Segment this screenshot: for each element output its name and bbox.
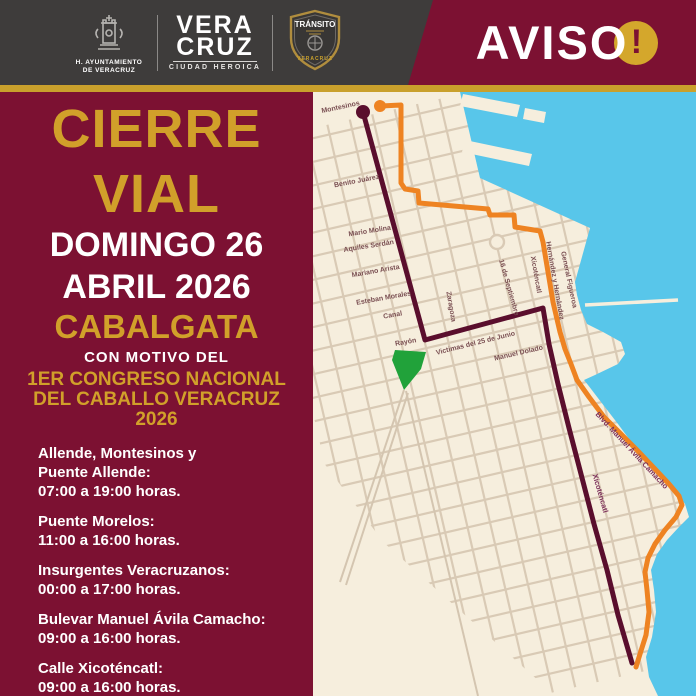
congress-line1: 1ER CONGRESO NACIONAL	[0, 370, 313, 390]
notice-label: AVISO	[476, 15, 629, 70]
ayuntamiento-name-line2: DE VERACRUZ	[70, 67, 148, 75]
header-divider	[157, 15, 158, 71]
schedule-hours: 00:00 a 17:00 horas.	[38, 581, 181, 598]
transito-shield-icon: TRÁNSITO VERACRUZ	[286, 8, 344, 72]
closure-date-line1: DOMINGO 26	[0, 226, 313, 264]
veracruz-logo-rule	[173, 61, 257, 62]
veracruz-logo-tagline: CIUDAD HEROICA	[167, 64, 263, 71]
schedule-street: Allende, Montesinos y Puente Allende:	[38, 445, 196, 481]
schedule-hours: 07:00 a 19:00 horas.	[38, 483, 181, 500]
header: H. AYUNTAMIENTO DE VERACRUZ VERA CRUZ CI…	[0, 0, 696, 85]
transito-badge: TRÁNSITO VERACRUZ	[286, 8, 344, 77]
schedule-item: Insurgentes Veracruzanos: 00:00 a 17:00 …	[38, 561, 303, 599]
congress-line3: 2026	[0, 410, 313, 430]
transito-badge-subtitle: VERACRUZ	[297, 56, 333, 62]
schedule-item: Allende, Montesinos y Puente Allende: 07…	[38, 444, 303, 501]
closure-title-line1: CIERRE	[0, 102, 313, 157]
schedule-street: Calle Xicoténcatl:	[38, 660, 163, 677]
header-logos: H. AYUNTAMIENTO DE VERACRUZ VERA CRUZ CI…	[0, 0, 420, 85]
info-panel: CIERRE VIAL DOMINGO 26 ABRIL 2026 CABALG…	[0, 92, 313, 696]
schedule-item: Puente Morelos: 11:00 a 16:00 horas.	[38, 512, 303, 550]
veracruz-logo: VERA CRUZ CIUDAD HEROICA	[167, 14, 263, 71]
road-closure-poster: H. AYUNTAMIENTO DE VERACRUZ VERA CRUZ CI…	[0, 0, 696, 696]
schedule-hours: 09:00 a 16:00 horas.	[38, 630, 181, 647]
ayuntamiento-logo: H. AYUNTAMIENTO DE VERACRUZ	[70, 11, 148, 75]
transito-badge-title: TRÁNSITO	[295, 20, 336, 29]
ayuntamiento-name-line1: H. AYUNTAMIENTO	[70, 59, 148, 67]
city-map: MontesinosBenito JuárezMario MolinaAquil…	[313, 92, 696, 696]
city-crest-icon	[86, 11, 132, 59]
route-orange-start-dot	[374, 100, 386, 112]
header-divider	[272, 15, 273, 71]
congress-line2: DEL CABALLO VERACRUZ	[0, 390, 313, 410]
closure-schedule: Allende, Montesinos y Puente Allende: 07…	[38, 444, 303, 696]
event-name: CABALGATA	[0, 308, 313, 346]
veracruz-logo-line2: CRUZ	[167, 36, 263, 58]
schedule-street: Puente Morelos:	[38, 513, 155, 530]
schedule-street: Insurgentes Veracruzanos:	[38, 562, 230, 579]
closure-title-line2: VIAL	[0, 167, 313, 222]
closure-date-line2: ABRIL 2026	[0, 268, 313, 306]
roundabout	[490, 235, 504, 249]
schedule-item: Bulevar Manuel Ávila Camacho: 09:00 a 16…	[38, 610, 303, 648]
schedule-street: Bulevar Manuel Ávila Camacho:	[38, 611, 266, 628]
gold-stripe	[0, 85, 696, 92]
schedule-item: Calle Xicoténcatl: 09:00 a 16:00 horas.	[38, 659, 303, 696]
notice-banner: AVISO !	[408, 0, 696, 85]
schedule-hours: 09:00 a 16:00 horas.	[38, 679, 181, 696]
motive-text: CON MOTIVO DEL	[0, 349, 313, 367]
schedule-hours: 11:00 a 16:00 horas.	[38, 532, 180, 549]
